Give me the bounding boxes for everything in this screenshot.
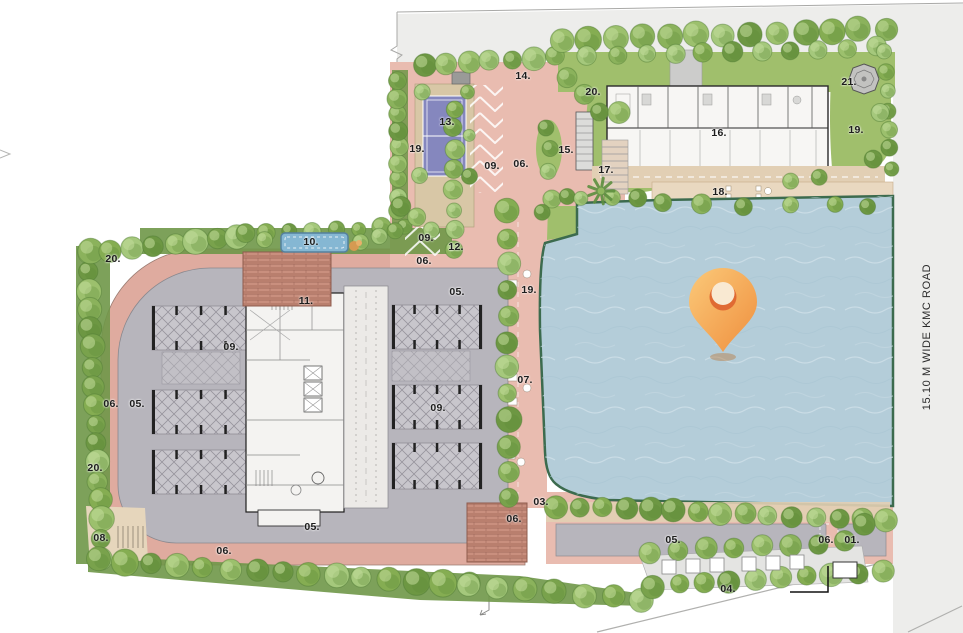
tower-core: [246, 293, 344, 512]
lake: [540, 196, 893, 506]
lift-bank: [304, 366, 322, 412]
site-plan-canvas: 15.10 M WIDE KMC ROAD 01.03.04.05.05.05.…: [0, 0, 963, 633]
ramp-11: [243, 252, 331, 306]
building-podium: [118, 268, 508, 543]
site-plan-svg: [0, 0, 963, 633]
water-feature-10: [281, 233, 348, 252]
gate-house: [833, 562, 857, 578]
ramp-06: [467, 503, 527, 562]
